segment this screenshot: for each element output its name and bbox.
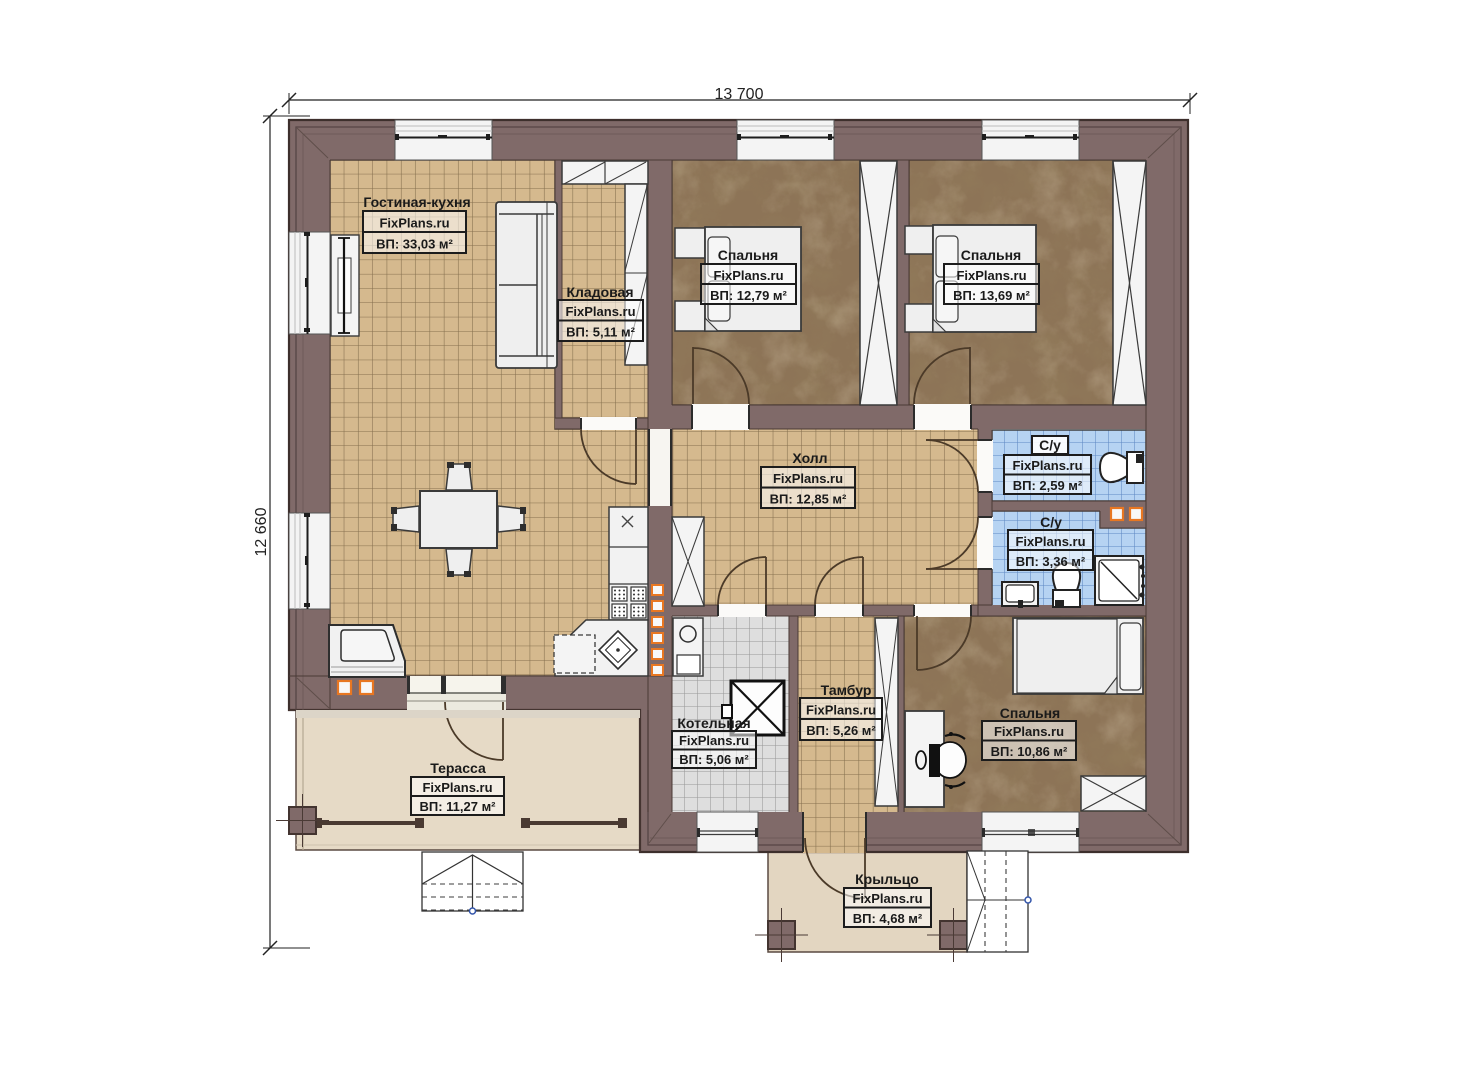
svg-text:FixPlans.ru: FixPlans.ru (773, 471, 843, 486)
svg-text:ВП: 4,68 м²: ВП: 4,68 м² (853, 911, 923, 926)
svg-text:FixPlans.ru: FixPlans.ru (679, 733, 749, 748)
svg-text:FixPlans.ru: FixPlans.ru (956, 268, 1026, 283)
svg-text:Терасса: Терасса (430, 760, 486, 776)
svg-text:FixPlans.ru: FixPlans.ru (994, 724, 1064, 739)
svg-text:ВП: 11,27 м²: ВП: 11,27 м² (419, 799, 496, 814)
svg-text:FixPlans.ru: FixPlans.ru (852, 891, 922, 906)
svg-text:Гостиная-кухня: Гостиная-кухня (363, 194, 470, 210)
svg-text:Котельная: Котельная (677, 715, 750, 731)
svg-text:FixPlans.ru: FixPlans.ru (1012, 458, 1082, 473)
svg-text:ВП: 33,03 м²: ВП: 33,03 м² (376, 237, 453, 252)
svg-text:13 700: 13 700 (715, 86, 764, 103)
svg-text:FixPlans.ru: FixPlans.ru (422, 780, 492, 795)
svg-text:ВП: 10,86 м²: ВП: 10,86 м² (991, 744, 1068, 759)
svg-text:Крыльцо: Крыльцо (855, 871, 919, 887)
svg-text:С/у: С/у (1040, 514, 1062, 530)
svg-text:ВП: 5,11 м²: ВП: 5,11 м² (566, 325, 635, 340)
svg-text:ВП: 13,69 м²: ВП: 13,69 м² (953, 288, 1030, 303)
svg-text:FixPlans.ru: FixPlans.ru (379, 216, 449, 231)
svg-text:FixPlans.ru: FixPlans.ru (565, 304, 635, 319)
svg-text:Спальня: Спальня (718, 247, 778, 263)
svg-text:ВП: 3,36 м²: ВП: 3,36 м² (1016, 554, 1086, 569)
svg-text:FixPlans.ru: FixPlans.ru (1015, 534, 1085, 549)
svg-text:12 660: 12 660 (253, 507, 270, 556)
svg-text:ВП: 12,79 м²: ВП: 12,79 м² (710, 288, 787, 303)
svg-text:FixPlans.ru: FixPlans.ru (713, 268, 783, 283)
svg-text:Спальня: Спальня (1000, 705, 1060, 721)
svg-text:ВП: 2,59 м²: ВП: 2,59 м² (1013, 478, 1083, 493)
svg-text:Спальня: Спальня (961, 247, 1021, 263)
svg-text:С/у: С/у (1039, 437, 1061, 453)
svg-text:Холл: Холл (792, 450, 827, 466)
svg-text:Кладовая: Кладовая (566, 284, 633, 300)
svg-text:Тамбур: Тамбур (821, 682, 872, 698)
svg-text:ВП: 12,85 м²: ВП: 12,85 м² (770, 492, 847, 507)
svg-text:ВП: 5,06 м²: ВП: 5,06 м² (679, 752, 749, 767)
svg-text:ВП: 5,26 м²: ВП: 5,26 м² (806, 723, 876, 738)
svg-text:FixPlans.ru: FixPlans.ru (806, 703, 876, 718)
